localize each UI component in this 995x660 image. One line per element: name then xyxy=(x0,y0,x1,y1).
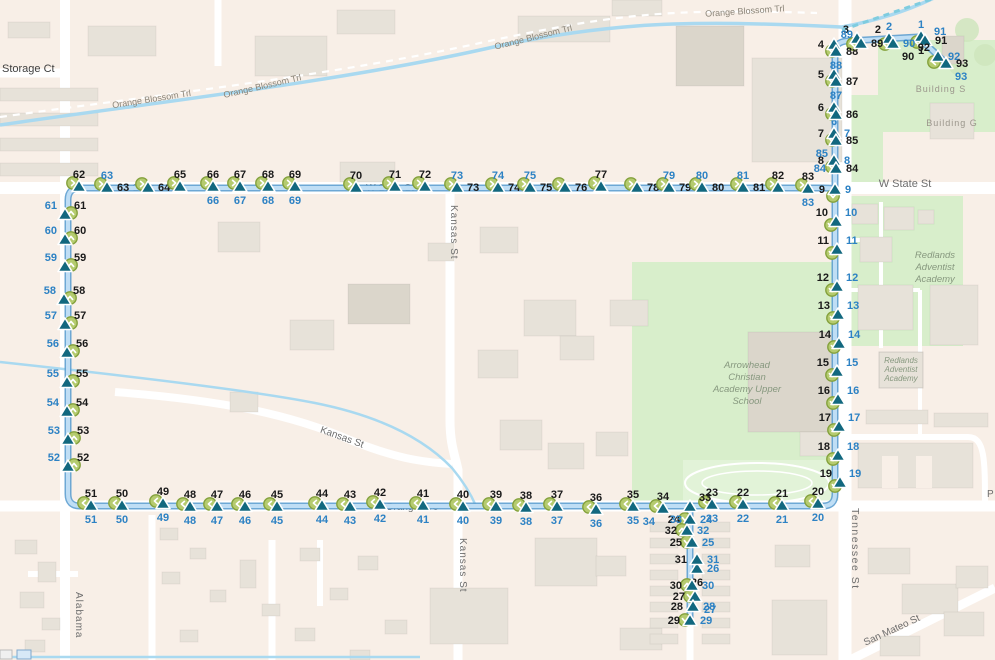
station-number-black: 7 xyxy=(818,128,824,140)
area-label: Academy Upper xyxy=(712,384,782,395)
station-marker-29[interactable]: 2929 xyxy=(668,614,713,627)
station-number-blue: 30 xyxy=(702,580,714,592)
station-number-black: 87 xyxy=(846,76,858,88)
building xyxy=(330,588,348,600)
station-number-black: 22 xyxy=(737,487,749,499)
station-number-black: 6 xyxy=(818,102,824,114)
area-label: Adventist xyxy=(914,262,954,273)
street-label: P xyxy=(987,489,994,500)
station-number-blue: 39 xyxy=(490,515,502,527)
station-number-blue: 67 xyxy=(234,195,246,207)
building xyxy=(702,634,730,644)
station-number-blue: 21 xyxy=(776,514,788,526)
station-number-black: 63 xyxy=(117,182,129,194)
station-number-blue: 60 xyxy=(45,225,57,237)
station-number-black: 54 xyxy=(76,397,89,409)
station-number-blue: 55 xyxy=(47,368,59,380)
station-number-black: 60 xyxy=(74,225,86,237)
station-number-black: 58 xyxy=(73,285,85,297)
station-number-black: 53 xyxy=(77,425,89,437)
building xyxy=(350,650,370,660)
building xyxy=(0,138,98,151)
station-number-black: 38 xyxy=(520,490,532,502)
area-label: School xyxy=(732,396,762,407)
street-label: Building G xyxy=(926,118,978,128)
station-number-black: 72 xyxy=(419,169,431,181)
building xyxy=(337,10,395,34)
building xyxy=(650,634,678,644)
station-number-black: 12 xyxy=(817,272,829,284)
station-number-blue: 53 xyxy=(48,425,60,437)
street-label: Kansas St xyxy=(457,538,468,593)
station-number-blue: 22 xyxy=(737,513,749,525)
map-control-fragment[interactable] xyxy=(17,650,31,659)
station-number-black: 36 xyxy=(590,492,602,504)
building xyxy=(240,560,256,588)
station-number-blue: 25 xyxy=(702,537,714,549)
area-label: Redlands xyxy=(884,356,918,365)
building xyxy=(300,548,320,561)
building xyxy=(775,545,810,567)
station-number-black: 17 xyxy=(819,412,831,424)
building xyxy=(902,584,958,614)
station-number-blue: 29 xyxy=(700,615,712,627)
area-label: Academy xyxy=(883,374,918,383)
building xyxy=(860,237,892,262)
station-number-blue: 93 xyxy=(955,71,967,83)
station-number-blue: 69 xyxy=(289,195,301,207)
building xyxy=(868,548,910,574)
building xyxy=(612,0,662,16)
station-number-blue: 15 xyxy=(846,357,858,369)
station-number-black: 10 xyxy=(816,207,828,219)
station-number-black: 49 xyxy=(157,486,169,498)
station-number-black: 15 xyxy=(817,357,829,369)
station-number-blue: 45 xyxy=(271,515,283,527)
street-label: Storage Ct xyxy=(2,63,55,75)
station-number-black: 30 xyxy=(670,580,682,592)
station-number-blue: 1 xyxy=(918,19,924,31)
building xyxy=(230,392,258,412)
station-number-black: 45 xyxy=(271,489,283,501)
building xyxy=(478,350,518,378)
station-number-black: 55 xyxy=(76,368,88,380)
station-number-blue: 37 xyxy=(551,515,563,527)
building xyxy=(8,22,50,38)
station-number-blue: 58 xyxy=(44,285,56,297)
building xyxy=(866,410,928,424)
station-number-black: 93 xyxy=(956,58,968,70)
station-number-black: 34 xyxy=(657,491,670,503)
station-number-blue: 35 xyxy=(627,515,639,527)
building xyxy=(858,285,913,330)
building xyxy=(884,207,914,230)
station-number-blue: 87 xyxy=(830,90,842,102)
station-number-blue: 17 xyxy=(848,412,860,424)
station-number-blue: 16 xyxy=(847,385,859,397)
station-number-blue: 32 xyxy=(697,525,709,537)
station-number-black: 4 xyxy=(818,39,825,51)
station-number-black: 11 xyxy=(817,235,829,247)
station-number-black: 41 xyxy=(417,488,429,500)
station-number-black: 81 xyxy=(753,182,765,194)
building xyxy=(262,604,280,616)
area-label: Christian xyxy=(728,372,766,383)
station-number-blue: 68 xyxy=(262,195,274,207)
station-number-blue: 49 xyxy=(157,512,169,524)
building xyxy=(290,320,334,350)
station-number-blue: 79 xyxy=(663,170,675,182)
building xyxy=(772,600,827,655)
building xyxy=(180,630,198,642)
station-number-black: 32 xyxy=(665,525,677,537)
map-control-fragment[interactable] xyxy=(0,650,12,659)
station-number-blue: 52 xyxy=(48,452,60,464)
building xyxy=(15,540,37,554)
building xyxy=(560,336,594,360)
building xyxy=(88,26,156,56)
street-label: Tennessee St xyxy=(849,508,861,590)
station-number-black: 14 xyxy=(819,329,832,341)
building xyxy=(160,528,178,540)
station-number-blue: 89 xyxy=(841,29,853,41)
station-number-blue: 57 xyxy=(45,310,57,322)
station-marker-25[interactable]: 2525 xyxy=(670,536,715,549)
station-number-black: 51 xyxy=(85,488,97,500)
station-number-black: 37 xyxy=(551,489,563,501)
station-number-blue: 91 xyxy=(934,26,946,38)
station-number-black: 13 xyxy=(818,300,830,312)
station-number-black: 82 xyxy=(772,170,784,182)
station-number-black: 62 xyxy=(73,169,85,181)
station-number-black: 52 xyxy=(77,452,89,464)
station-number-black: 43 xyxy=(344,489,356,501)
building xyxy=(524,300,576,336)
street-label: Kansas St xyxy=(448,205,459,260)
station-number-blue: 40 xyxy=(457,515,469,527)
building xyxy=(255,36,327,76)
station-number-black: 42 xyxy=(374,487,386,499)
station-number-black: 77 xyxy=(595,169,607,181)
station-number-black: 92 xyxy=(918,42,930,54)
building xyxy=(934,413,988,427)
building xyxy=(430,588,508,644)
station-number-blue: 11 xyxy=(846,235,858,247)
station-number-black: 25 xyxy=(670,537,682,549)
station-number-blue: 12 xyxy=(846,272,858,284)
station-number-black: 47 xyxy=(211,489,223,501)
station-number-blue: 56 xyxy=(47,338,59,350)
building xyxy=(650,570,678,580)
station-number-black: 67 xyxy=(234,169,246,181)
building xyxy=(385,620,407,634)
station-number-blue: 63 xyxy=(101,170,113,182)
station-number-blue: 28 xyxy=(703,601,715,613)
street-label: W State St xyxy=(879,178,932,190)
station-number-blue: 85 xyxy=(816,148,828,160)
station-number-blue: 10 xyxy=(845,207,857,219)
station-number-black: 80 xyxy=(712,182,724,194)
map-svg: W State StState StOrange AveStorage CtOr… xyxy=(0,0,995,660)
station-number-black: 19 xyxy=(820,468,832,480)
station-marker-30[interactable]: 3030 xyxy=(670,579,715,592)
station-number-black: 59 xyxy=(74,252,86,264)
building xyxy=(500,420,542,450)
station-number-black: 18 xyxy=(818,441,830,453)
area-label: Arrowhead xyxy=(723,360,771,371)
station-number-blue: 51 xyxy=(85,514,97,526)
station-number-black: 57 xyxy=(74,310,86,322)
station-number-blue: 50 xyxy=(116,514,128,526)
station-number-black: 84 xyxy=(846,163,859,175)
building xyxy=(596,556,626,576)
station-number-blue: 20 xyxy=(812,512,824,524)
station-number-black: 73 xyxy=(467,182,479,194)
station-number-blue: 81 xyxy=(737,170,749,182)
station-number-black: 21 xyxy=(776,488,788,500)
station-number-blue: 2 xyxy=(886,21,892,33)
station-number-black: 85 xyxy=(846,135,858,147)
station-number-black: 61 xyxy=(74,200,86,212)
building xyxy=(956,566,988,588)
station-number-blue: 44 xyxy=(316,514,329,526)
station-number-black: 5 xyxy=(818,69,824,81)
station-number-black: 71 xyxy=(389,169,401,181)
station-number-black: 2 xyxy=(875,24,881,36)
station-number-black: 28 xyxy=(671,601,683,613)
building xyxy=(190,548,206,559)
building xyxy=(295,628,315,641)
station-number-black: 89 xyxy=(871,38,883,50)
station-number-blue: 47 xyxy=(211,515,223,527)
building xyxy=(0,88,98,101)
building xyxy=(20,592,44,608)
station-number-black: 39 xyxy=(490,489,502,501)
station-number-blue: 61 xyxy=(45,200,57,212)
station-number-black: 68 xyxy=(262,169,274,181)
station-number-blue: 90 xyxy=(903,38,915,50)
building xyxy=(596,432,628,456)
area-label: Academy xyxy=(914,274,956,285)
station-number-blue: 73 xyxy=(451,170,463,182)
station-number-blue: 19 xyxy=(849,468,861,480)
building xyxy=(676,26,744,86)
station-number-blue: 14 xyxy=(848,329,861,341)
station-number-black: 16 xyxy=(818,385,830,397)
station-number-blue: 33 xyxy=(670,514,682,526)
station-number-black: 75 xyxy=(540,182,552,194)
station-number-black: 48 xyxy=(184,489,196,501)
area-label: Redlands xyxy=(915,250,955,261)
station-number-blue: 59 xyxy=(45,252,57,264)
station-number-black: 70 xyxy=(350,170,362,182)
station-number-blue: 36 xyxy=(590,518,602,530)
station-number-blue: 46 xyxy=(239,515,251,527)
building xyxy=(162,572,180,584)
station-number-blue: 38 xyxy=(520,516,532,528)
station-number-blue: 54 xyxy=(47,397,60,409)
building xyxy=(218,222,260,252)
station-number-blue: 75 xyxy=(524,170,536,182)
station-number-black: 69 xyxy=(289,169,301,181)
building xyxy=(480,227,518,253)
building xyxy=(858,443,973,488)
station-number-black: 83 xyxy=(802,171,814,183)
station-number-blue: 41 xyxy=(417,514,429,526)
station-number-black: 56 xyxy=(76,338,88,350)
station-number-black: 90 xyxy=(902,51,914,63)
station-number-black: 31 xyxy=(675,554,687,566)
station-number-black: 65 xyxy=(174,169,186,181)
station-number-black: 46 xyxy=(239,489,251,501)
station-marker-31[interactable]: 3131 xyxy=(675,553,720,566)
station-number-black: 44 xyxy=(316,488,329,500)
building xyxy=(348,284,410,324)
station-number-blue: 88 xyxy=(830,60,842,72)
station-marker-84[interactable]: 8484 xyxy=(814,162,859,175)
building xyxy=(358,556,378,570)
station-number-blue: 66 xyxy=(207,195,219,207)
station-number-black: 35 xyxy=(627,489,639,501)
station-number-blue: 83 xyxy=(802,197,814,209)
station-number-blue: 9 xyxy=(845,184,851,196)
station-number-blue: 18 xyxy=(847,441,859,453)
station-number-blue: 13 xyxy=(847,300,859,312)
station-number-blue: 84 xyxy=(814,163,827,175)
building xyxy=(548,443,584,469)
station-number-blue: 34 xyxy=(643,516,656,528)
station-number-black: 40 xyxy=(457,489,469,501)
station-number-black: 20 xyxy=(812,486,824,498)
building xyxy=(610,300,648,326)
street-label: Alabama xyxy=(73,592,84,638)
map-canvas[interactable]: W State StState StOrange AveStorage CtOr… xyxy=(0,0,995,660)
station-number-black: 66 xyxy=(207,169,219,181)
building xyxy=(930,285,978,345)
building xyxy=(535,538,597,586)
building xyxy=(944,612,984,636)
station-number-blue: 74 xyxy=(492,170,505,182)
building xyxy=(42,618,60,630)
building xyxy=(210,590,226,602)
street-label: Building S xyxy=(916,84,967,94)
station-marker-28[interactable]: 2828 xyxy=(671,600,716,613)
building xyxy=(918,210,934,224)
station-number-black: 33 xyxy=(699,492,711,504)
tree-icon xyxy=(974,44,995,66)
station-number-blue: 80 xyxy=(696,170,708,182)
station-number-black: 29 xyxy=(668,615,680,627)
station-number-black: 76 xyxy=(575,182,587,194)
station-number-black: 86 xyxy=(846,109,858,121)
area-label: Adventist xyxy=(884,365,919,374)
station-number-black: 50 xyxy=(116,488,128,500)
station-number-blue: 48 xyxy=(184,515,196,527)
station-number-blue: 31 xyxy=(707,554,719,566)
station-number-blue: 43 xyxy=(344,515,356,527)
station-number-blue: 42 xyxy=(374,513,386,525)
station-number-black: 9 xyxy=(819,184,825,196)
building xyxy=(38,562,56,582)
